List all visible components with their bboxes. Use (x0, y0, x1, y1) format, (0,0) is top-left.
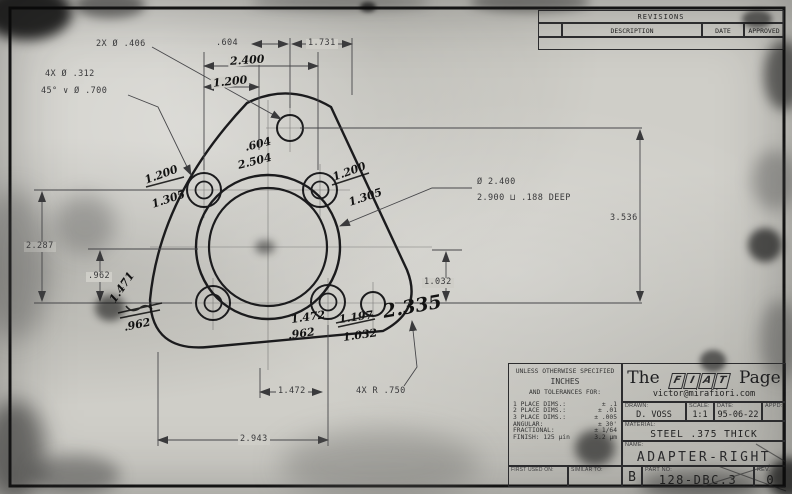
tol-row-value: 3.2 µm (594, 435, 617, 442)
name-label: NAME: (625, 443, 643, 449)
revisions-empty-row (538, 37, 784, 50)
revisions-title: REVISIONS (539, 13, 783, 21)
fiat-logo-t: T (713, 373, 731, 389)
similar-to-label: SIMILAR TO: (571, 468, 603, 473)
dim-962: .962 (86, 272, 112, 282)
material-label: MATERIAL: (625, 423, 655, 429)
dim-1032: 1.032 (422, 278, 454, 288)
tol-line2: INCHES (509, 376, 621, 388)
name-value: ADAPTER-RIGHT (623, 450, 785, 465)
callout-4x-holes: 4X Ø .312 (45, 70, 95, 80)
revisions-col-approved: APPROVED (745, 27, 783, 35)
brand-page: Page (739, 368, 781, 388)
brand-cell: The FIAT Page victor@mirafiori.com (622, 363, 786, 402)
date-label: DATE: (717, 404, 734, 410)
dim-3536: 3.536 (610, 214, 638, 224)
tol-line1: UNLESS OTHERWISE SPECIFIED (509, 367, 621, 376)
revisions-col-description: DESCRIPTION (563, 27, 701, 35)
appd-label: APPD: (765, 404, 783, 410)
size-value: B (623, 470, 641, 485)
dim-604: .604 (216, 39, 238, 49)
hw-bl-962: .962 (287, 326, 315, 341)
callout-countersink: 45° ∨ Ø .700 (41, 87, 107, 97)
callout-bore-dia: Ø 2.400 (477, 178, 516, 188)
dim-2943: 2.943 (238, 435, 270, 445)
callout-2x-holes: 2X Ø .406 (96, 40, 146, 50)
brand-email: victor@mirafiori.com (623, 389, 785, 400)
first-used-label: FIRST USED ON: (511, 468, 554, 473)
tolerance-block: UNLESS OTHERWISE SPECIFIED INCHES AND TO… (508, 363, 622, 466)
callout-counterbore: 2.900 ⊔ .188 DEEP (477, 194, 571, 204)
material-value: STEEL .375 THICK (623, 429, 785, 440)
revisions-col-date: DATE (703, 27, 743, 35)
dim-1731: 1.731 (306, 39, 338, 49)
rev-value: 0 (755, 473, 785, 487)
callout-corner-radius: 4X R .750 (356, 387, 406, 397)
part-no-value: 128-DBC.3 (643, 473, 753, 487)
blueprint-sheet: 2X Ø .406 4X Ø .312 45° ∨ Ø .700 .604 1.… (0, 0, 792, 494)
hw-2400: 2.400 (228, 53, 267, 67)
drawn-label: DRAWN: (625, 404, 648, 410)
tol-line3: AND TOLERANCES FOR: (509, 388, 621, 397)
brand-the: The (627, 368, 659, 388)
drawn-value: D. VOSS (623, 410, 685, 420)
scale-label: SCALE: (689, 404, 710, 410)
date-value: 95-06-22 (715, 410, 761, 420)
dim-1472: 1.472 (276, 387, 308, 397)
scale-value: 1:1 (687, 410, 713, 420)
dim-2287: 2.287 (24, 242, 56, 252)
tol-row-label: FINISH: 125 µin (513, 435, 570, 442)
